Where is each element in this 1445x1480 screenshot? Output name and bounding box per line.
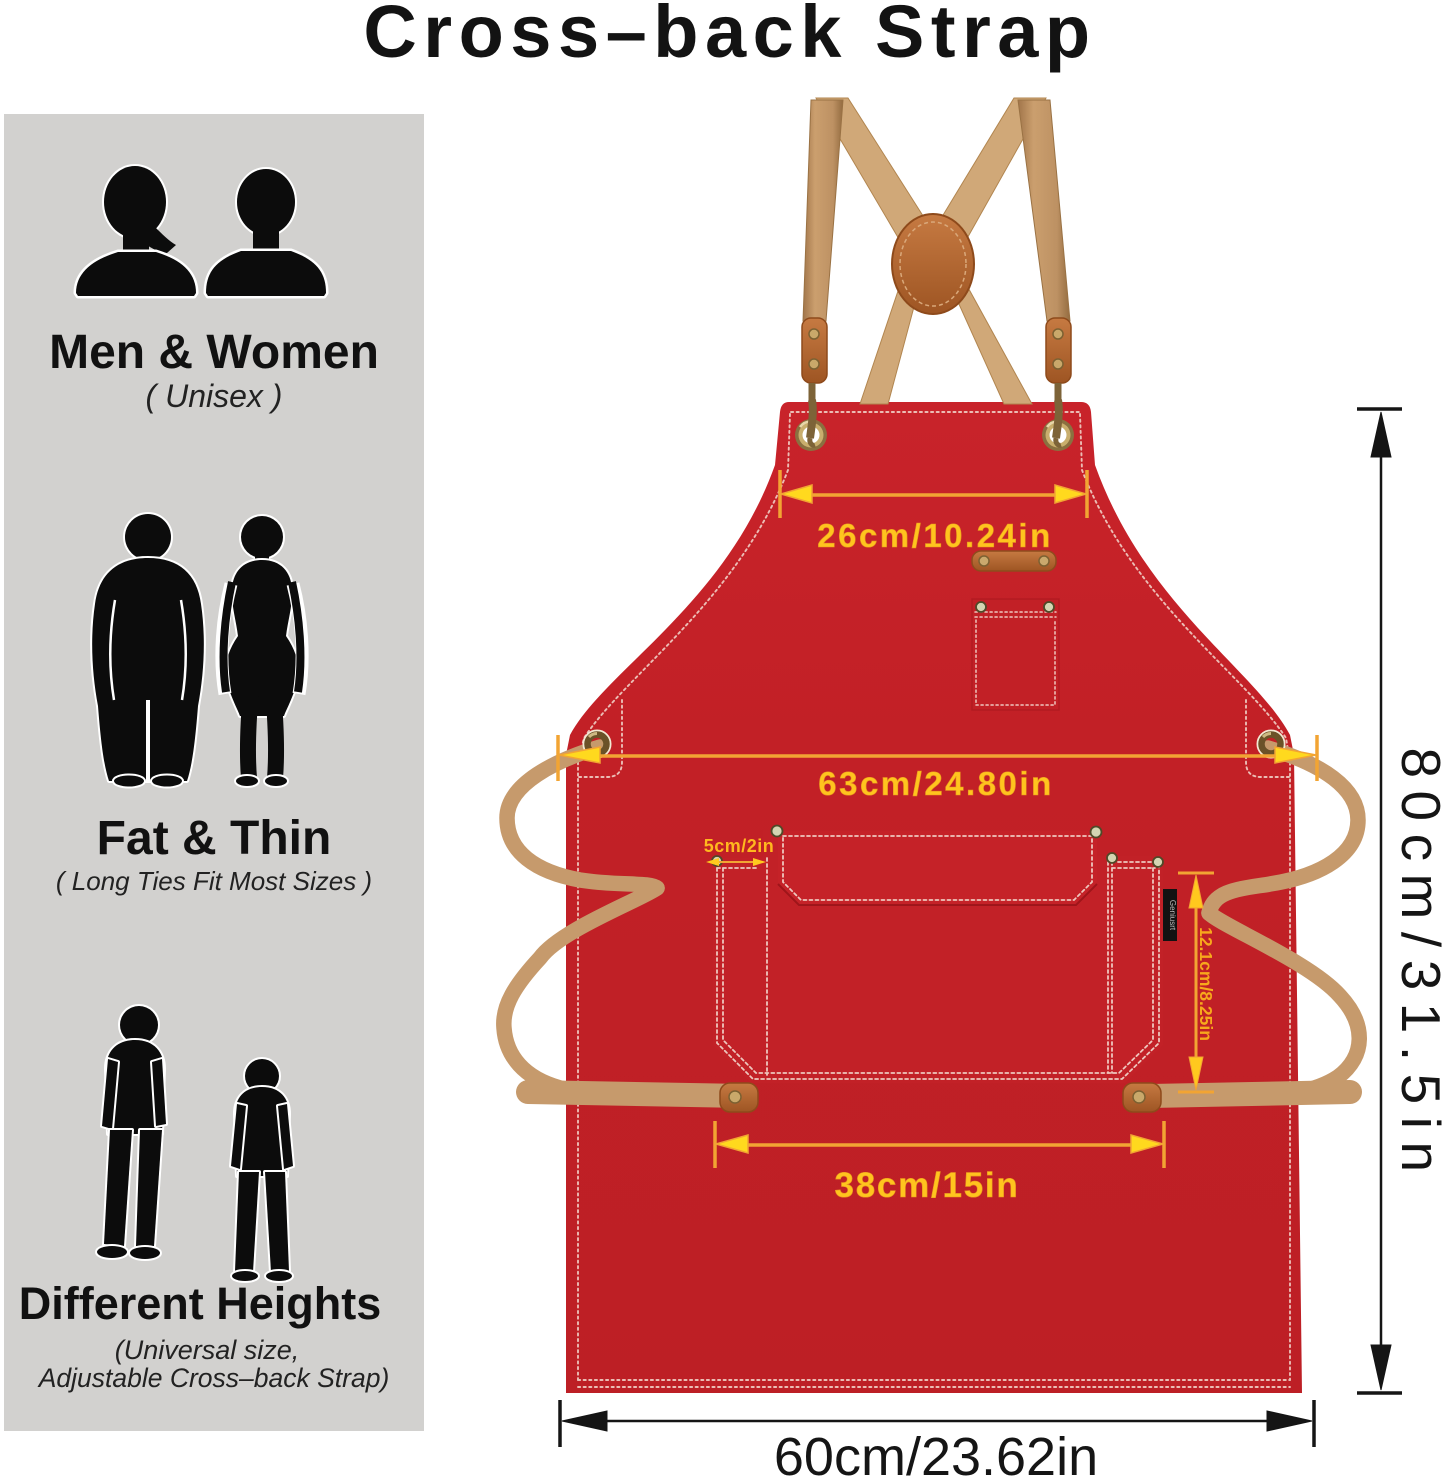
svg-text:60cm/23.62in: 60cm/23.62in [774,1427,1098,1480]
svg-text:Geniusrt: Geniusrt [1168,900,1177,931]
svg-text:12.1cm/8.25in: 12.1cm/8.25in [1196,927,1216,1041]
svg-text:38cm/15in: 38cm/15in [834,1166,1019,1205]
svg-text:63cm/24.80in: 63cm/24.80in [818,765,1053,802]
svg-text:26cm/10.24in: 26cm/10.24in [817,517,1052,554]
svg-text:5cm/2in: 5cm/2in [704,836,775,856]
svg-text:80cm/31.5in: 80cm/31.5in [1390,747,1445,1184]
